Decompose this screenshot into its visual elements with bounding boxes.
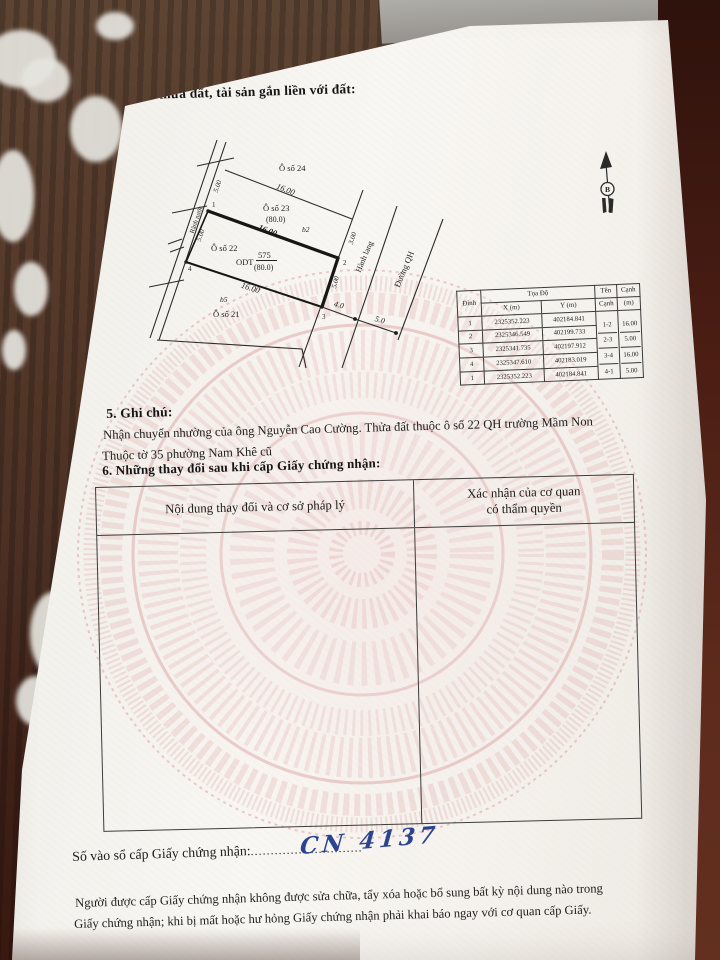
paint-splotch <box>96 12 134 40</box>
vertex-3: 3 <box>322 313 326 321</box>
corridor-line <box>342 206 397 368</box>
dim-5-0: 5.0 <box>374 314 386 326</box>
north-letter: B <box>605 185 610 194</box>
col-edge-name-2: Cạnh <box>595 297 618 311</box>
vertex-id: 1 <box>458 316 483 331</box>
col-edge-name-1: Tên <box>595 284 618 298</box>
coordinate-table: Đỉnh Tọa Độ Tên Cạnh X (m) Y (m) Cạnh (m… <box>456 283 644 386</box>
changes-table: Nội dung thay đổi và cơ sở pháp lý Xác n… <box>95 474 642 832</box>
col-vertex: Đỉnh <box>457 290 482 317</box>
changes-col1-body <box>97 528 422 831</box>
b5-label: b5 <box>220 295 228 304</box>
edge-names: 1-2 2-3 3-4 4-1 <box>596 310 621 379</box>
area-denominator: (80.0) <box>254 263 274 272</box>
road-line <box>150 140 217 338</box>
changes-col2-body <box>415 523 641 823</box>
changes-col1-header: Nội dung thay đổi và cơ sở pháp lý <box>96 480 415 535</box>
area-numerator: 575 <box>258 250 271 260</box>
vertex-2: 2 <box>343 259 347 267</box>
section5-title: 5. Ghi chú: <box>106 404 173 422</box>
planned-road-label: Đường QH <box>392 250 416 289</box>
vertex-1: 1 <box>212 201 216 209</box>
cadastral-diagram: Ô số 24 16.00 Ô số 23 (80.0) b2 16.00 Ô … <box>140 130 455 385</box>
dim-3-right: 3.00 <box>347 231 359 247</box>
photo-of-land-certificate-page: 4. Sơ đồ thửa đất, tài sản gắn liền với … <box>0 0 720 960</box>
parcel-22-label: Ô số 22 <box>211 243 237 253</box>
paper-bottom-shadow <box>0 928 360 960</box>
north-arrow-head <box>600 151 612 169</box>
paint-splotch <box>22 58 70 102</box>
b2-label: b2 <box>302 225 310 234</box>
dim-5-road-top: 5.00 <box>212 179 224 194</box>
vertex-4: 4 <box>188 265 192 273</box>
dim-16-top: 16.00 <box>275 181 297 197</box>
paint-splotch <box>14 262 48 316</box>
changes-col2-header: Xác nhận của cơ quan có thẩm quyền <box>414 475 634 527</box>
fletching-left <box>602 198 607 213</box>
paint-splotch <box>70 96 122 162</box>
dim-4-0: 4.0 <box>333 299 345 310</box>
dim-16-edge43: 16.00 <box>240 280 262 296</box>
paint-splotch <box>2 330 26 370</box>
north-arrow: B <box>588 148 624 226</box>
corridor-label: Hành lang <box>354 240 375 274</box>
parcel-23-area: (80.0) <box>266 215 286 224</box>
parcel-21-label: Ô số 21 <box>213 309 239 319</box>
parcel-24-label: Ô số 24 <box>279 163 306 173</box>
odt-label: ODT <box>236 257 254 267</box>
parcel-23-label: Ô số 23 <box>263 203 289 213</box>
